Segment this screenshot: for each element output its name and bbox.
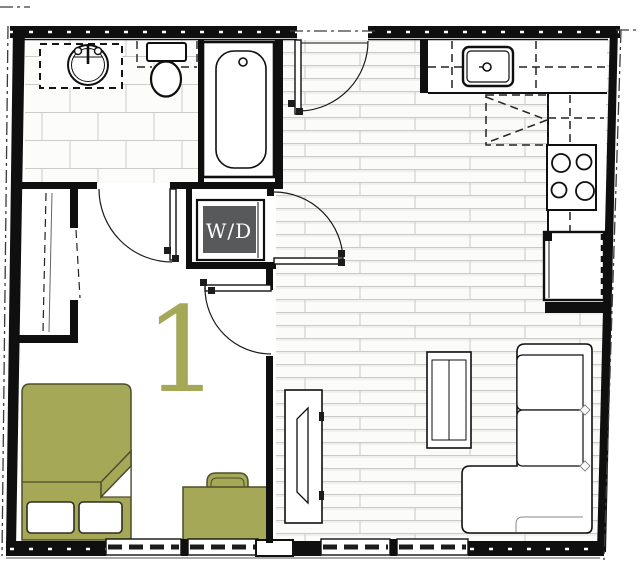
counter-end-panel: [420, 40, 428, 93]
refrigerator: [544, 232, 604, 300]
window-mullion: [390, 539, 397, 556]
tv-console: [285, 390, 324, 523]
floor-plan: W/D 1: [0, 0, 640, 563]
wd-label: W/D: [206, 219, 252, 243]
windows: [6, 539, 604, 558]
sofa-cushion: [517, 410, 583, 466]
vanity-sink: [40, 44, 122, 88]
bed: [22, 384, 131, 540]
wall-below-fridge: [545, 302, 604, 313]
window-sill-pier: [256, 540, 293, 556]
kitchen-sink: [463, 47, 513, 86]
floor-plan-drawing: W/D 1: [0, 0, 640, 563]
desk: [183, 487, 271, 541]
sofa-cushion: [517, 355, 583, 410]
bathtub: [203, 42, 274, 177]
tv: [297, 408, 308, 503]
washer-dryer: W/D: [197, 200, 264, 260]
stove: [547, 145, 596, 210]
unit-number-label: 1: [144, 281, 219, 419]
window-mullion: [181, 539, 188, 556]
pillow: [27, 502, 74, 533]
pillow: [79, 502, 122, 533]
coffee-table: [427, 352, 471, 448]
